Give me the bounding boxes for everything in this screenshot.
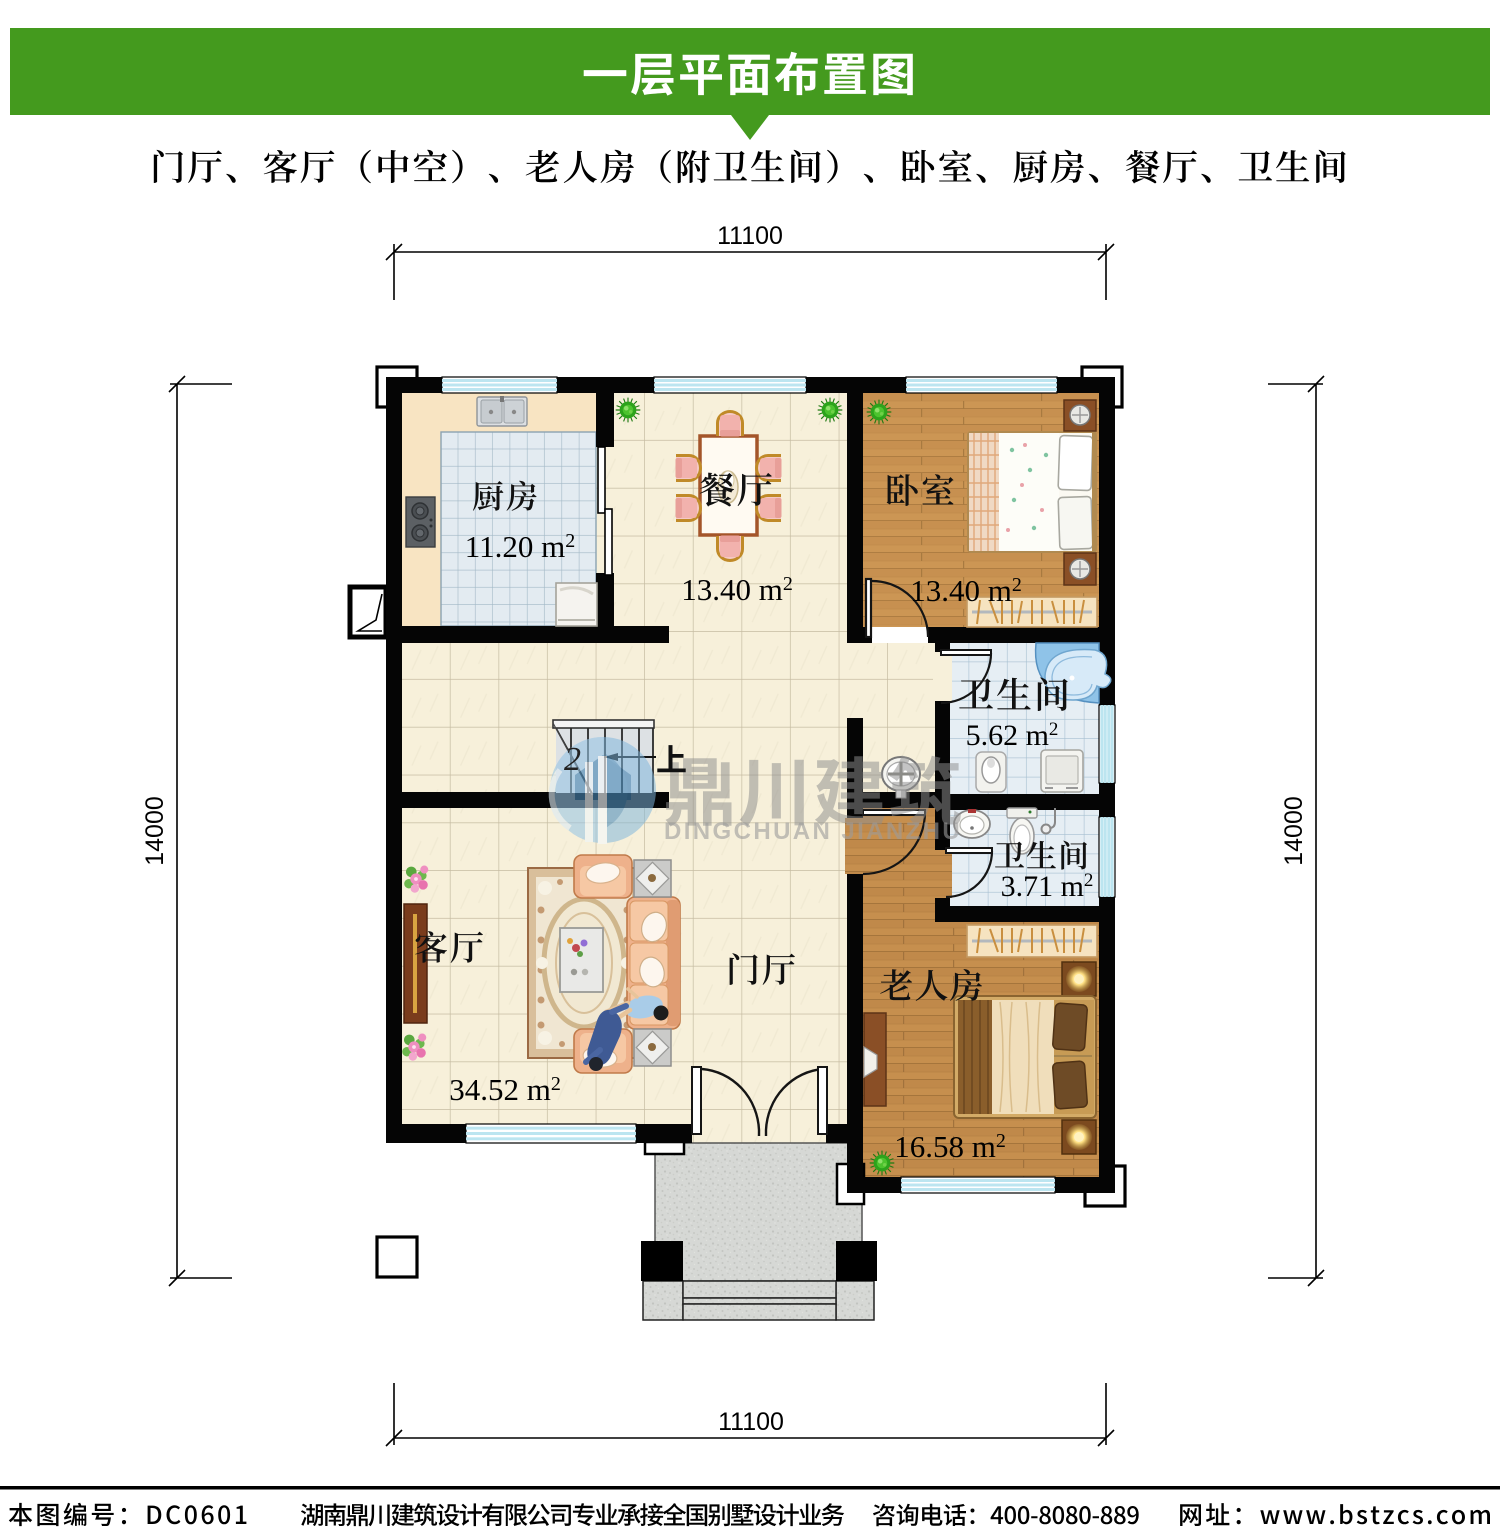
svg-text:13.40 m2: 13.40 m2 <box>910 573 1022 608</box>
svg-text:DINGCHUAN JIANZHU: DINGCHUAN JIANZHU <box>664 818 962 845</box>
svg-text:13.40 m2: 13.40 m2 <box>681 572 793 607</box>
svg-text:11100: 11100 <box>718 1408 784 1436</box>
svg-text:14000: 14000 <box>141 796 169 866</box>
svg-text:3.71 m2: 3.71 m2 <box>1001 870 1094 903</box>
svg-text:5.62 m2: 5.62 m2 <box>966 719 1059 752</box>
svg-text:11.20 m2: 11.20 m2 <box>465 529 575 564</box>
svg-text:2: 2 <box>564 741 581 778</box>
svg-text:11100: 11100 <box>717 222 783 250</box>
svg-text:16.58 m2: 16.58 m2 <box>894 1129 1006 1164</box>
svg-text:14000: 14000 <box>1280 796 1308 866</box>
svg-text:34.52 m2: 34.52 m2 <box>449 1072 561 1107</box>
